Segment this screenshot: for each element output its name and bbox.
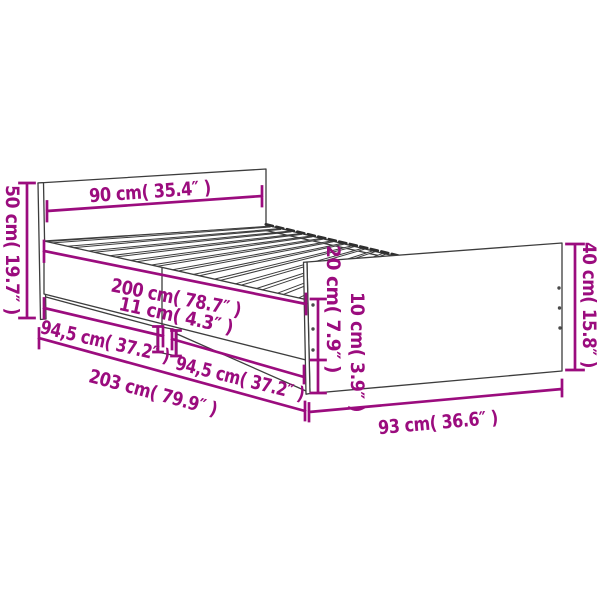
screw-icon	[558, 306, 561, 309]
dimension-footboard-height: 40 cm( 15.8″ )	[567, 242, 600, 370]
dimension-label: 10 cm( 3.9″ )	[346, 292, 368, 412]
screw-icon	[558, 326, 561, 329]
diagram-canvas: 50 cm( 19.7″ ) 90 cm( 35.4″ ) 200 cm( 78…	[0, 0, 600, 600]
dimension-label: 50 cm( 19.7″ )	[1, 185, 23, 315]
dimension-label: 40 cm( 15.8″ )	[578, 242, 600, 368]
screw-icon	[311, 327, 314, 330]
screw-icon	[311, 348, 314, 351]
footboard-panel	[307, 243, 562, 394]
screw-icon	[311, 303, 314, 306]
dimension-label: 20 cm( 7.9″ )	[322, 245, 344, 373]
dimension-headboard-height: 50 cm( 19.7″ )	[1, 183, 35, 318]
screw-icon	[557, 286, 560, 289]
bed-frame-diagram: 50 cm( 19.7″ ) 90 cm( 35.4″ ) 200 cm( 78…	[0, 0, 600, 600]
dimension-label: 93 cm( 36.6″ )	[377, 407, 498, 439]
